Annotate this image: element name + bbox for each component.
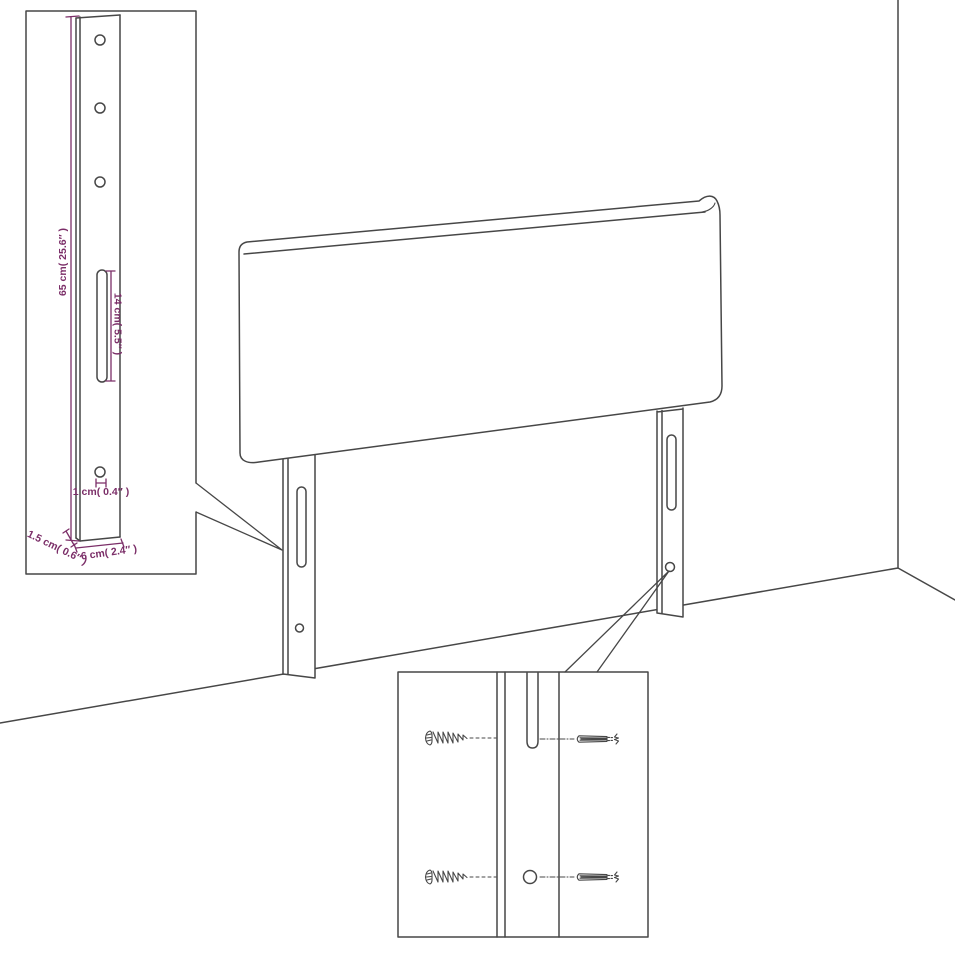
inset-screw-hole [524,871,537,884]
headboard-dimension-diagram: 65 cm( 25.6″ ) 14 cm( 5.5″ ) 1 cm( 0.4″ … [0,0,955,955]
inset-screw-slot [527,673,538,748]
right-callout-lines [565,571,669,672]
machine-screw-top [577,734,618,744]
headboard-left-leg [283,454,315,678]
dimension-label-hole-diameter: 1 cm( 0.4″ ) [73,487,129,498]
wood-screw-bottom [426,870,468,884]
inset-screw-detail-box [398,672,648,937]
headboard-right-leg [657,406,683,617]
wood-screw-top [426,731,468,745]
dimension-label-slot-length: 14 cm( 5.5″ ) [112,293,123,355]
dimension-label-leg-height: 65 cm( 25.6″ ) [58,228,69,296]
left-callout-lines [196,483,282,550]
machine-screw-bottom [577,872,618,882]
line-art [0,0,955,955]
headboard-panel [239,196,722,462]
inset-screw-leg-lines [497,672,559,937]
